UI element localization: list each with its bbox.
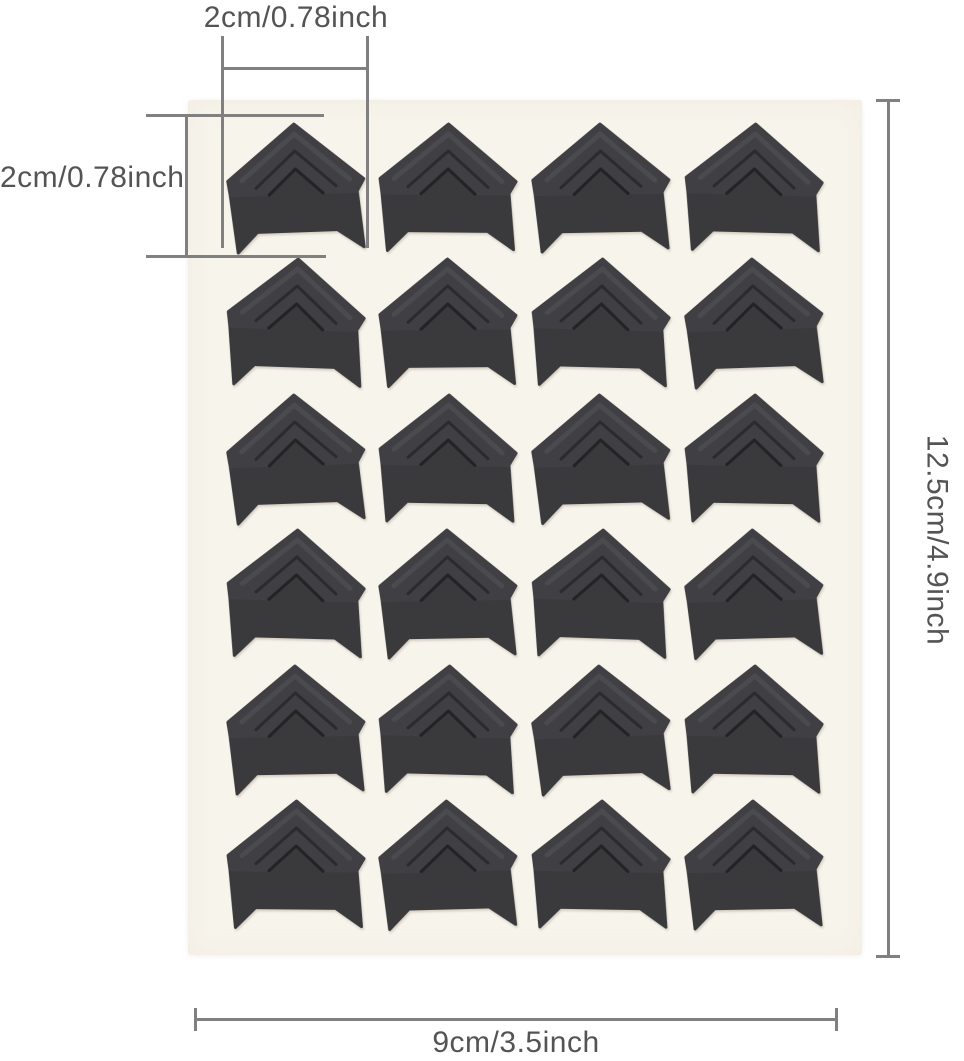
photo-corner-sticker xyxy=(529,390,672,526)
photo-corner-sticker xyxy=(683,391,825,525)
left-bracket-line xyxy=(185,114,188,258)
photo-corner-sticker xyxy=(682,254,827,391)
photo-corner-sticker xyxy=(377,120,518,253)
photo-corner-sticker xyxy=(225,662,367,796)
photo-corner-sticker xyxy=(529,525,674,662)
photo-corner-sticker xyxy=(530,797,672,931)
photo-corner-sticker xyxy=(682,525,825,661)
photo-corner-sticker xyxy=(683,797,825,931)
photo-corner-sticker xyxy=(376,661,519,797)
photo-corner-sticker xyxy=(682,119,825,255)
photo-corner-sticker xyxy=(377,526,519,660)
photo-corner-sticker xyxy=(225,797,366,930)
sheet-width-line xyxy=(195,1018,837,1021)
photo-corner-sticker xyxy=(224,390,369,527)
corner-height-label: 2cm/0.78inch xyxy=(0,161,168,194)
sheet-width-label: 9cm/3.5inch xyxy=(396,1026,636,1059)
photo-corner-sticker xyxy=(377,255,518,388)
sheet-width-right-tick xyxy=(835,1008,838,1031)
photo-corner-sticker xyxy=(224,525,367,661)
photo-corner-sticker xyxy=(529,254,672,390)
sheet-height-bottom-tick xyxy=(876,955,900,958)
sheet-width-left-tick xyxy=(194,1008,197,1031)
photo-corner-sticker xyxy=(377,391,519,525)
photo-corner-sticker xyxy=(529,661,674,798)
corner-sheet xyxy=(188,100,862,955)
photo-corner-sticker xyxy=(376,796,519,932)
photo-corner-sticker xyxy=(683,662,825,796)
sheet-height-line xyxy=(887,100,890,957)
sheet-height-top-tick xyxy=(876,99,900,102)
product-dimension-image: 2cm/0.78inch 2cm/0.78inch 12.5cm/4.9inch… xyxy=(0,0,964,1061)
top-bracket-cross-line xyxy=(221,67,369,70)
photo-corner-sticker xyxy=(530,120,672,254)
sheet-height-label: 12.5cm/4.9inch xyxy=(921,435,954,645)
photo-corner-sticker xyxy=(224,119,369,256)
left-bracket-top-tick xyxy=(146,114,324,117)
left-bracket-bottom-tick xyxy=(146,255,326,258)
corner-width-label: 2cm/0.78inch xyxy=(165,1,427,34)
photo-corner-sticker xyxy=(224,254,369,391)
